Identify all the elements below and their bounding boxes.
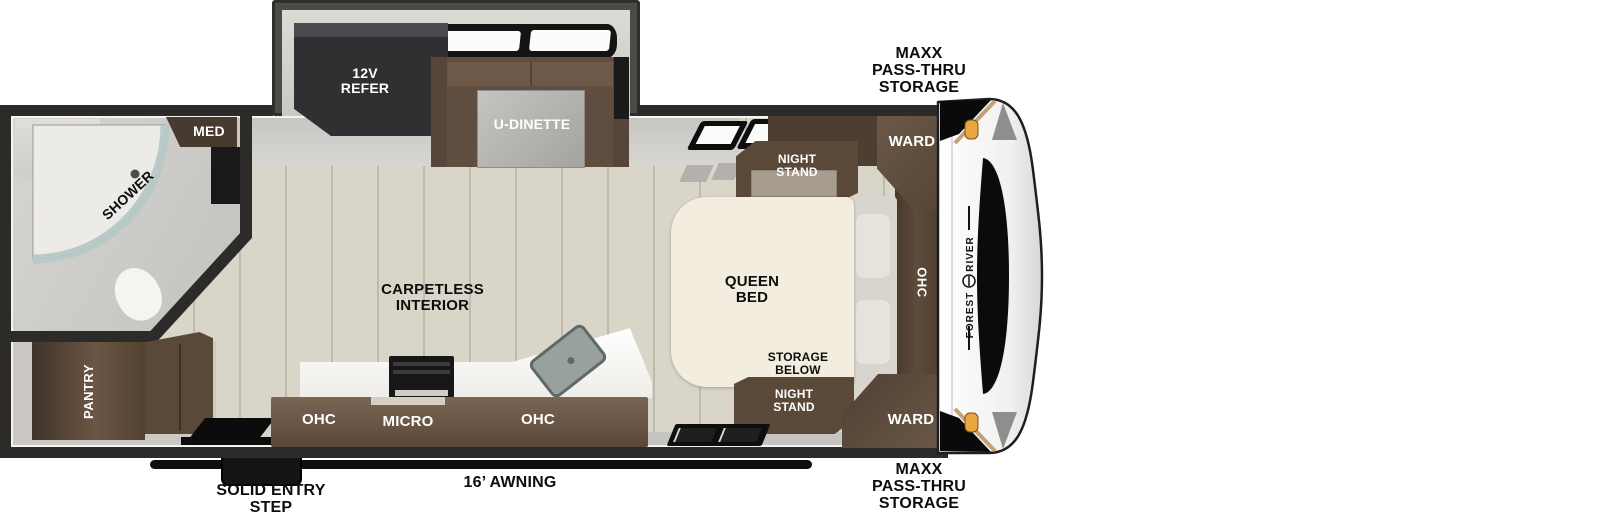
bathroom-dark-cabinet (211, 147, 240, 204)
awning-label: 16’ AWNING (425, 474, 595, 491)
pantry-label: PANTRY (81, 364, 96, 419)
stove-handle (395, 390, 448, 396)
entry-step-label: SOLID ENTRY STEP (196, 482, 346, 516)
bottom-wall (0, 446, 948, 458)
marker-light-lower (965, 413, 978, 432)
roof-vent-1-lid (696, 126, 740, 144)
bedroom-window-pane-right (718, 428, 762, 442)
stove-grate-1 (393, 362, 450, 366)
storage-below-bottom-label: STORAGE BELOW (746, 351, 850, 377)
rv-floorplan: 16’ AWNING SOLID ENTRY STEP SHOWER MED P… (0, 0, 1600, 519)
carpetless-interior-label: CARPETLESS INTERIOR (345, 282, 520, 314)
pass-thru-storage-label-top: MAXX PASS-THRU STORAGE (845, 45, 993, 96)
slide-window-pane-left (440, 31, 521, 51)
bathroom-right-wall (240, 116, 252, 238)
night-stand-top-label: NIGHT STAND (741, 153, 853, 179)
front-cap: RIVER FOREST (929, 94, 1049, 458)
dinette-backrest (439, 62, 621, 86)
slide-window-pane-right (529, 30, 611, 51)
pantry-tall-cabinet (145, 332, 213, 434)
pillow-bottom (856, 300, 890, 364)
microwave-strip (371, 397, 445, 405)
night-stand-bottom-label: NIGHT STAND (741, 388, 847, 414)
sink-drain (566, 356, 576, 366)
front-ohc-label: OHC (914, 267, 929, 297)
microwave-label: MICRO (366, 414, 450, 430)
medicine-cabinet-label: MED (181, 124, 237, 139)
marker-light-upper (965, 120, 978, 139)
refrigerator-top-face (294, 23, 448, 37)
pillow-top (856, 214, 890, 278)
dinette-label: U-DINETTE (452, 117, 612, 132)
brand-word-forest: FOREST (965, 292, 976, 339)
dinette-backrest-divider (530, 62, 532, 86)
entry-door-threshold (181, 437, 277, 445)
kitchen-ohc-left-label: OHC (283, 412, 355, 428)
pantry-tall-cabinet-door-line (179, 344, 181, 431)
refrigerator-label: 12V REFER (310, 66, 420, 96)
kitchen-ohc-right-label: OHC (498, 412, 578, 428)
slide-window (431, 24, 617, 58)
pass-thru-storage-label-bottom: MAXX PASS-THRU STORAGE (845, 461, 993, 512)
bed-headboard (850, 196, 897, 388)
brand-word-river: RIVER (965, 236, 976, 272)
bedroom-window-bottom (667, 424, 771, 446)
dinette-arm-left (431, 57, 447, 167)
queen-bed-label: QUEEN BED (697, 274, 807, 306)
stove-grate-2 (393, 370, 450, 374)
pantry-label-box: PANTRY (38, 336, 138, 446)
bedroom-window-pane-left (673, 428, 717, 442)
stove (389, 356, 454, 398)
dinette-side-cabinet (614, 57, 629, 119)
